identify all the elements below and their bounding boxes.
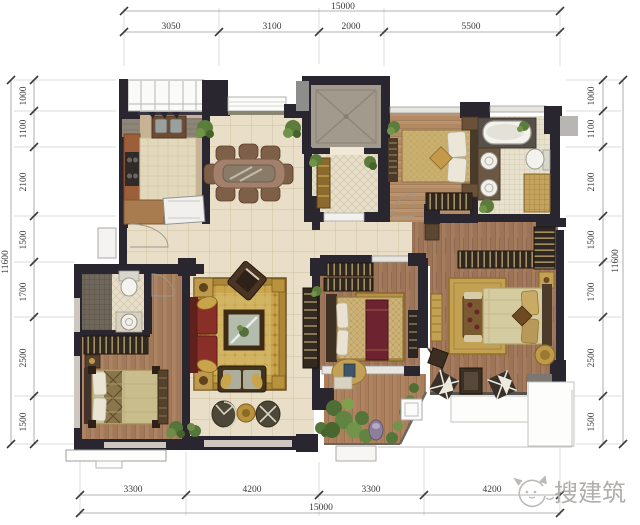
svg-text:1100: 1100 <box>19 119 29 138</box>
svg-text:11600: 11600 <box>1 250 11 274</box>
svg-text:3300: 3300 <box>362 485 381 495</box>
svg-text:5500: 5500 <box>462 22 481 32</box>
svg-text:2000: 2000 <box>342 22 361 32</box>
svg-text:2100: 2100 <box>19 172 29 191</box>
svg-text:1100: 1100 <box>587 119 597 138</box>
svg-text:1700: 1700 <box>587 282 597 301</box>
svg-text:2500: 2500 <box>19 348 29 367</box>
svg-text:1500: 1500 <box>19 230 29 249</box>
svg-text:1700: 1700 <box>19 282 29 301</box>
svg-text:1000: 1000 <box>19 86 29 105</box>
svg-text:1500: 1500 <box>19 412 29 431</box>
svg-text:15000: 15000 <box>309 503 333 513</box>
svg-text:1500: 1500 <box>587 230 597 249</box>
svg-text:2100: 2100 <box>587 172 597 191</box>
svg-text:3100: 3100 <box>263 22 282 32</box>
svg-text:3050: 3050 <box>162 22 181 32</box>
svg-text:4200: 4200 <box>483 485 502 495</box>
svg-text:4200: 4200 <box>243 485 262 495</box>
svg-text:搜建筑: 搜建筑 <box>554 480 626 507</box>
svg-text:3300: 3300 <box>124 485 143 495</box>
svg-text:2500: 2500 <box>587 348 597 367</box>
svg-text:15000: 15000 <box>331 2 355 12</box>
svg-text:11600: 11600 <box>611 249 621 273</box>
svg-text:1000: 1000 <box>587 86 597 105</box>
svg-text:1500: 1500 <box>587 412 597 431</box>
